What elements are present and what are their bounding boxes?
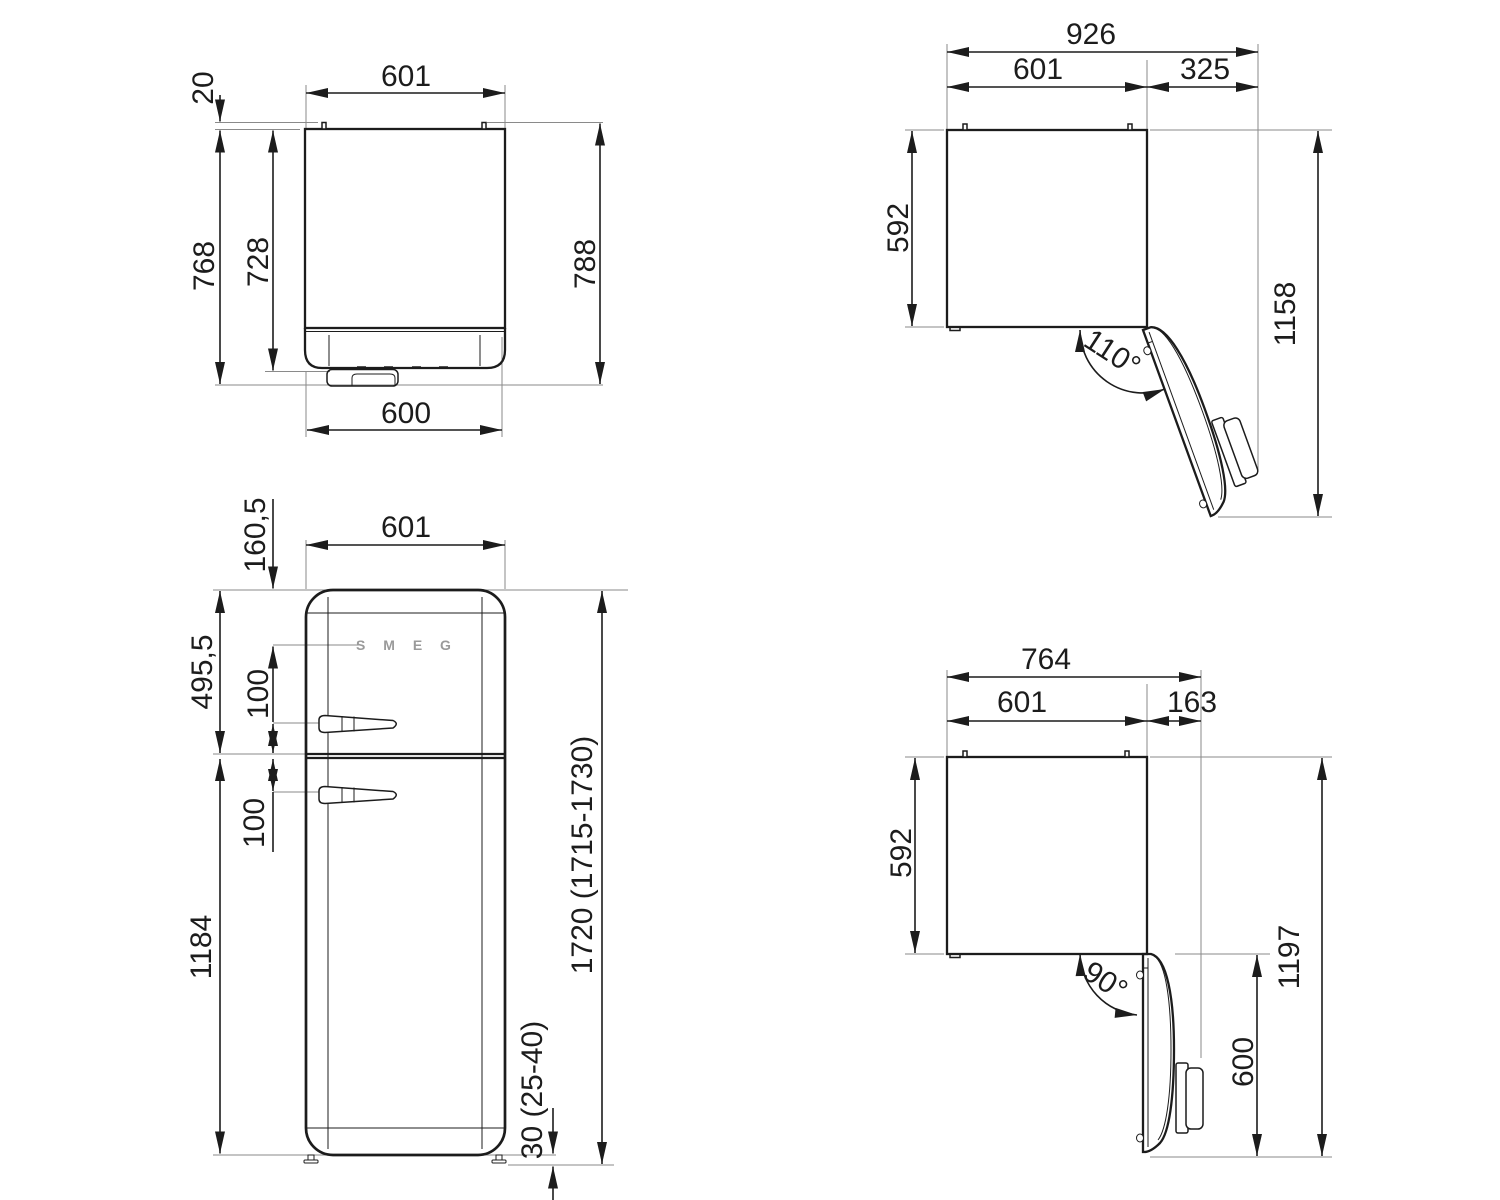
dim-side-depth-inner: 728: [242, 237, 275, 287]
dim-top90-door-protrusion: 163: [1167, 686, 1217, 719]
dim-side-width-top: 601: [381, 60, 431, 93]
side-view-cabinet: [305, 123, 505, 387]
top-view-90: 764 601 163 592 1197 600 90°: [885, 643, 1332, 1157]
top110-pin-right: [1128, 124, 1132, 130]
dim-top110-door-angle: 110°: [1078, 323, 1146, 383]
dim-top110-width-cabinet: 601: [1013, 53, 1063, 86]
dim-front-height-total: 1720 (1715-1730): [566, 736, 599, 975]
side-compressor: [327, 370, 398, 387]
dim-side-depth-total: 788: [569, 239, 602, 289]
side-hinge-pin-left: [322, 123, 326, 130]
upper-door-handle: [319, 716, 396, 733]
dim-front-upper-handle-offset: 100: [242, 669, 275, 719]
lower-door-handle: [319, 787, 396, 804]
side-hinge-pin-right: [482, 123, 486, 130]
dim-top90-width-total: 764: [1021, 643, 1071, 676]
dim-top90-door-depth: 600: [1227, 1037, 1260, 1087]
dim-front-logo-offset: 160,5: [239, 497, 272, 572]
dim-top110-door-protrusion: 325: [1180, 53, 1230, 86]
dim-top110-depth-total: 1158: [1269, 282, 1302, 347]
refrigerator-dimension-drawing: 601 20 768 728 788 600: [0, 0, 1500, 1200]
dim-front-lower-door-height: 1184: [185, 915, 218, 980]
dimension-diagram-canvas: 601 20 768 728 788 600: [0, 0, 1500, 1200]
top90-open-door: [1137, 954, 1204, 1152]
dim-side-width-bottom: 600: [381, 397, 431, 430]
top-view-110-extension-lines: [905, 44, 1332, 517]
dim-front-width: 601: [381, 511, 431, 544]
top-view-90-extension-lines: [905, 670, 1332, 1157]
dim-side-pin-depth: 20: [187, 71, 220, 104]
top90-pin-left: [963, 751, 967, 757]
dim-front-lower-handle-offset: 100: [238, 798, 271, 848]
top-view-110: 926 601 325 592 1158 110°: [882, 18, 1332, 518]
top90-pin-right: [1125, 751, 1129, 757]
dim-front-foot-clearance: 30 (25-40): [516, 1021, 549, 1159]
top110-open-door: [1137, 309, 1267, 518]
top-view-90-dimensions: 764 601 163 592 1197 600 90°: [885, 643, 1322, 1156]
dim-top90-width-cabinet: 601: [997, 686, 1047, 719]
dim-top90-depth-cabinet: 592: [885, 828, 918, 878]
front-view-dimensions: 601 160,5 495,5 100 100 1184 1720 (1715-…: [185, 497, 602, 1200]
dim-front-upper-door-height: 495,5: [186, 634, 219, 709]
smeg-logo: S M E G: [356, 637, 458, 653]
dim-side-depth-cabinet: 768: [188, 241, 221, 291]
top110-pin-left: [963, 124, 967, 130]
dim-top110-width-total: 926: [1066, 18, 1116, 51]
side-view: 601 20 768 728 788 600: [187, 60, 603, 437]
top-view-90-cabinet: [947, 751, 1147, 958]
dim-top110-depth-cabinet: 592: [882, 203, 915, 253]
front-view-refrigerator: S M E G: [304, 590, 506, 1163]
side-view-dimensions: 601 20 768 728 788 600: [187, 60, 602, 430]
dim-top90-depth-total: 1197: [1273, 925, 1306, 990]
top-view-110-cabinet: [947, 124, 1147, 331]
dim-top90-door-angle: 90°: [1077, 955, 1133, 1007]
front-view: S M E G: [185, 497, 628, 1200]
